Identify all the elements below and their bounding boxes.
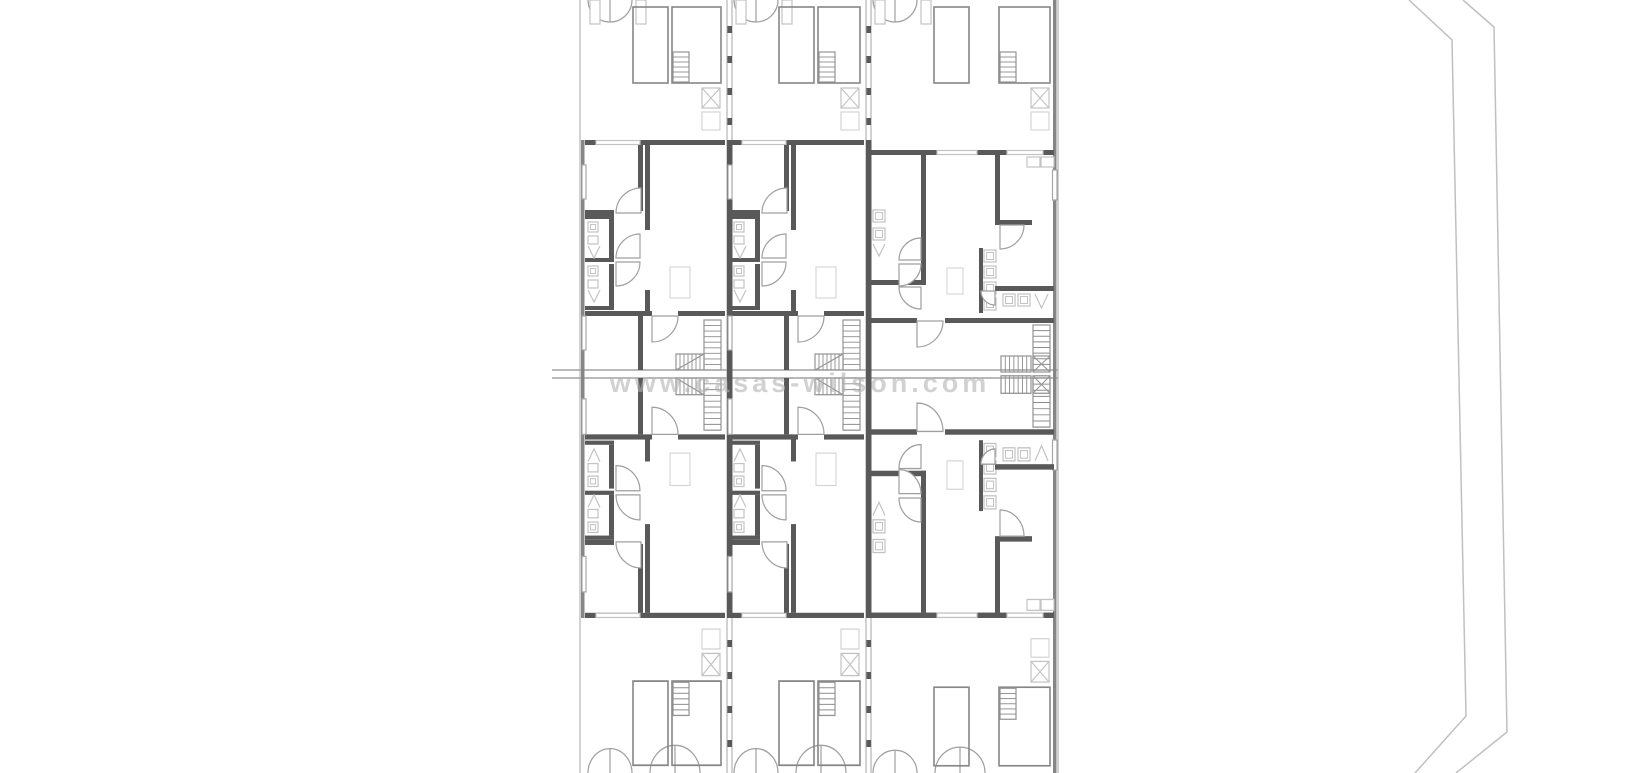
unit-top-3 [870,150,1054,372]
unit-bottom-3 [870,376,1054,618]
garage-top-2 [734,0,860,130]
garage-bottom-3 [873,639,1050,773]
garage-bottom-2 [734,629,860,773]
plot-boundary [1409,0,1507,773]
garage-top-1 [588,0,721,130]
unit-bottom-1 [582,378,725,618]
garage-top-3 [873,0,1050,130]
floor-plan-page: www.casas-wilson.com [0,0,1638,773]
floor-plan-svg: www.casas-wilson.com [0,0,1638,773]
watermark-text: www.casas-wilson.com [609,368,991,398]
unit-top-2 [728,140,864,370]
unit-bottom-2 [728,378,864,618]
unit-top-1 [582,140,725,370]
garage-bottom-1 [588,629,721,773]
